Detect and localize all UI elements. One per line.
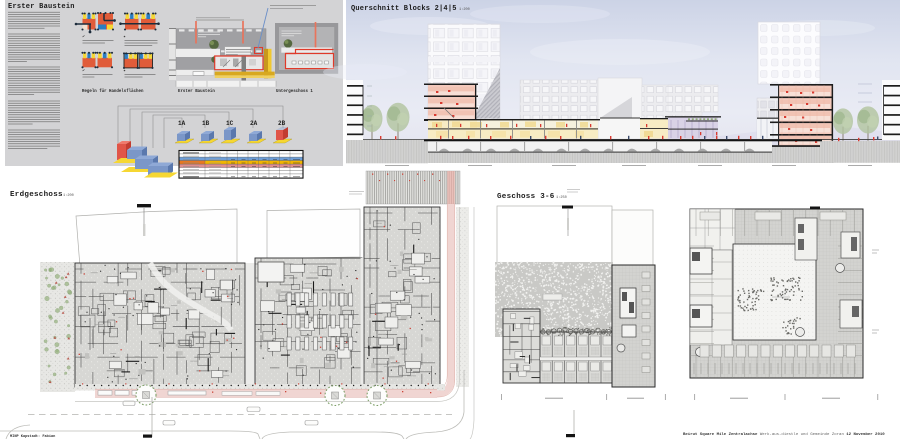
svg-text:1C: 1C	[226, 120, 234, 127]
svg-text:2A: 2A	[250, 120, 258, 127]
svg-text:Beirut Square Mile Zentralachs: Beirut Square Mile Zentralachse Werk-aus…	[683, 432, 885, 437]
svg-text:1A: 1A	[178, 120, 186, 127]
svg-text:2B: 2B	[278, 120, 286, 127]
svg-text:Regeln für Handelsflächen: Regeln für Handelsflächen	[82, 89, 144, 94]
svg-text:Erster Baustein: Erster Baustein	[178, 89, 215, 94]
svg-text:1:200: 1:200	[459, 8, 470, 12]
svg-text:Geschoss 3-6: Geschoss 3-6	[497, 193, 555, 201]
svg-text:1B: 1B	[202, 120, 210, 127]
svg-text:Untergeschoss 1: Untergeschoss 1	[276, 89, 313, 94]
svg-text:1:200: 1:200	[63, 194, 74, 198]
svg-text:MINP Kapstadt: Fabian: MINP Kapstadt: Fabian	[10, 434, 55, 439]
svg-text:Querschnitt Blocks 2|4|5: Querschnitt Blocks 2|4|5	[351, 5, 457, 13]
svg-text:Erster Baustein: Erster Baustein	[8, 3, 75, 11]
svg-text:Erdgeschoss: Erdgeschoss	[10, 191, 63, 199]
svg-text:1:250: 1:250	[556, 196, 567, 200]
